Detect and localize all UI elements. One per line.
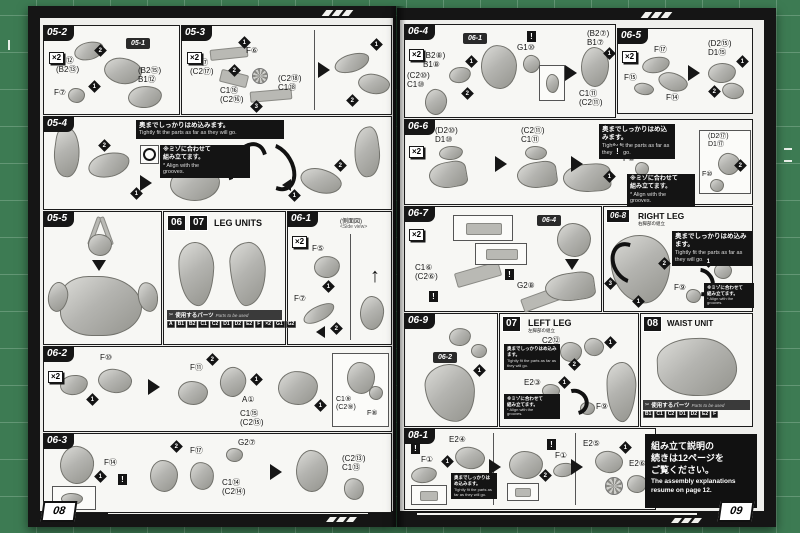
part-drawing	[300, 299, 337, 328]
detail-inset	[539, 65, 565, 101]
step-panel-05-5: 05-5	[43, 211, 162, 345]
part-label: C1⑯ (C2⑯)	[220, 86, 244, 104]
runner-badge: D1	[677, 411, 687, 418]
part-label: G2⑦	[238, 438, 256, 447]
step-panel-06-7: 06-7 ×2 C1⑥ (C2⑥) ! G2⑧ ! 06-4	[404, 206, 602, 312]
warning-jp: 奥までしっかりはめ込みます。	[675, 233, 749, 250]
part-label: F⑦	[54, 88, 66, 97]
part-drawing	[633, 82, 654, 97]
part-drawing	[707, 62, 737, 85]
caution-icon: !	[505, 269, 514, 280]
runner-badge: E2	[700, 411, 710, 418]
section-title: LEG UNITS	[214, 218, 262, 228]
part-drawing	[332, 49, 372, 77]
parts-used-jp: 使用するパーツ	[651, 401, 689, 409]
step-tag: 06-6	[404, 119, 435, 135]
step-panel-05-4: 05-4 奥までしっかりはめ込みます。 Tightly fit the part…	[43, 116, 392, 210]
part-drawing	[127, 84, 163, 109]
note-en: * Align with the grooves.	[163, 163, 247, 176]
part-drawing	[295, 449, 329, 493]
warning-en: Tightly fit the parts as far as they wil…	[139, 130, 281, 137]
step-tag: 06-4	[404, 24, 435, 40]
continuation-notice: 組み立て説明の 続きは12ページを ご覧ください。 The assembly e…	[645, 434, 757, 508]
panel-divider	[314, 30, 315, 110]
notice-jp-line3: ご覧ください。	[651, 464, 751, 476]
part-label: (D2⑰) D1⑰	[708, 133, 729, 149]
part-label: F⑥	[246, 46, 258, 55]
part-label: C1⑪ (C2⑪)	[579, 89, 603, 107]
runner-badge: B1	[643, 411, 653, 418]
part-drawing	[427, 159, 469, 191]
part-drawing	[277, 370, 319, 407]
order-marker: 1	[86, 393, 99, 406]
part-drawing	[448, 65, 473, 85]
assembly-arrow-icon	[571, 459, 583, 475]
part-label: F⑮	[624, 73, 637, 82]
step-tag: 05-2	[43, 25, 74, 41]
part-label: F⑭	[104, 458, 117, 467]
step-tag: 06-5	[617, 28, 648, 44]
runner-badge: G2	[286, 321, 297, 328]
runner-badge: D1	[221, 321, 231, 328]
detail-inset	[453, 215, 513, 241]
ref-step-tag: 06-1	[463, 33, 487, 44]
leg-render	[604, 361, 637, 422]
page-number-right: 09	[718, 501, 755, 522]
assembly-arrow-icon	[282, 179, 291, 191]
step-tag: 06-3	[43, 433, 74, 449]
step-tag: 06-1	[287, 211, 318, 227]
step-panel-05-2: 05-2 ×2 05-1 B1⑫ (B2⑬) F⑦ (B2⑮) B1⑫ 2 1	[43, 25, 180, 115]
step-tag: 05-4	[43, 116, 74, 132]
multiplier-badge: ×2	[48, 371, 63, 383]
step-panel-06-1: 06-1 ×2 (側面図) <Side view> F⑤ 1 F⑦ 2 ↑	[287, 211, 392, 345]
order-marker: 1	[88, 80, 101, 93]
order-marker: 1	[473, 364, 486, 377]
step-tag: 06-9	[404, 313, 435, 329]
page-deco	[417, 513, 697, 515]
section-subtitle-jp: 右脚部の組立	[638, 221, 665, 227]
right-page: 09 06-4 ×2 06-1 (B2⑧) B1⑧ (C2⑩) C1⑩ ! G1…	[397, 8, 776, 527]
fan-part-drawing	[605, 477, 623, 495]
runner-badges: A B1 B2 C1 C2 D1 D2 E2 F ×2 G1 G2	[167, 321, 282, 328]
part-drawing	[210, 46, 249, 61]
assembly-arrow-icon	[571, 156, 583, 172]
part-label: C1⑮ (C2⑮)	[240, 409, 264, 427]
panel-divider	[350, 234, 351, 340]
part-drawing	[583, 336, 606, 357]
part-drawing	[556, 222, 591, 257]
step-panel-06-9: 06-9 06-2 1	[404, 313, 498, 427]
section-title: WAIST UNIT	[667, 319, 713, 328]
leg-render	[177, 241, 215, 306]
warning-en: Tightly fit the parts as far as they wil…	[454, 487, 494, 497]
part-label: F⑦	[294, 294, 306, 303]
part-label: E2③	[524, 378, 541, 387]
notice-jp-line1: 組み立て説明の	[651, 440, 751, 452]
part-drawing	[188, 460, 216, 491]
caution-icon: !	[411, 443, 420, 454]
runner-badge: D2	[689, 411, 699, 418]
runner-badge: B2	[187, 321, 197, 328]
warning-jp: 奥までしっかりはめ込みます。	[507, 346, 557, 358]
left-page-content: 05-2 ×2 05-1 B1⑫ (B2⑬) F⑦ (B2⑮) B1⑫ 2 1 …	[40, 18, 393, 511]
cutter-icon: ✂	[169, 312, 173, 318]
part-drawing	[480, 44, 518, 89]
part-label: F⑩	[100, 353, 112, 362]
caution-icon: !	[613, 146, 622, 157]
order-marker: 1	[250, 373, 263, 386]
caution-icon: !	[527, 31, 536, 42]
page-number-text: 09	[729, 505, 743, 517]
groove-icon	[143, 148, 156, 161]
part-drawing	[150, 460, 178, 492]
part-label: (D2⑩) D1⑩	[435, 126, 458, 144]
ref-step-tag: 06-2	[433, 352, 457, 363]
multiplier-badge: ×2	[409, 229, 424, 241]
left-page: 08 05-2 ×2 05-1 B1⑫ (B2⑬) F⑦ (B2⑮) B1⑫ 2…	[28, 6, 396, 527]
part-drawing	[410, 465, 438, 484]
assembly-arrow-icon	[688, 65, 700, 81]
order-marker: 1	[322, 280, 335, 293]
runner-badge: G1	[274, 321, 285, 328]
part-drawing	[313, 254, 342, 279]
mat-mark	[784, 160, 792, 162]
step-tag: 06-7	[404, 206, 435, 222]
part-label: F①	[555, 451, 567, 460]
detail-inset	[411, 485, 447, 505]
part-label: F⑩	[702, 171, 713, 179]
section-subtitle-jp: 左脚部の組立	[528, 328, 555, 334]
parts-used-strip: ✂ 使用するパーツ Parts to be used B1 C1 C2 D1 D…	[643, 400, 750, 418]
part-label: F⑭	[666, 93, 679, 102]
groove-note-box: ※ミゾに合わせて 組み立てます。 * Align with the groove…	[160, 145, 250, 178]
step-panel-06-3: 06-3 F⑭ ! 1 F⑰ 2 G2⑦ C1⑭ (C2⑭) (C2⑬) C1⑬	[43, 433, 392, 513]
part-drawing	[51, 125, 84, 178]
parts-used-jp: 使用するパーツ	[175, 311, 213, 319]
multiplier-badge: ×2	[622, 51, 637, 63]
part-label: (D2⑮) D1⑮	[708, 39, 732, 57]
parts-used-head: ✂ 使用するパーツ Parts to be used	[167, 310, 282, 320]
runner-badge: F	[711, 411, 718, 418]
detail-inset	[507, 483, 539, 501]
order-marker: 1	[94, 470, 107, 483]
waist-render	[656, 337, 738, 398]
section-header-waist-unit: 08 WAIST UNIT ✂ 使用するパーツ Parts to be used…	[640, 313, 753, 427]
part-label: (B2⑮) B1⑫	[138, 66, 161, 84]
part-label: F⑨	[674, 283, 686, 292]
part-drawing	[359, 295, 385, 331]
runner-badge: B1	[176, 321, 186, 328]
parts-used-strip: ✂ 使用するパーツ Parts to be used A B1 B2 C1 C2…	[167, 310, 282, 328]
part-label: F⑤	[312, 244, 324, 253]
note-jp: ※ミゾに合わせて 組み立てます。	[163, 147, 247, 163]
part-drawing	[420, 491, 438, 501]
parts-used-en: Parts to be used	[692, 403, 725, 408]
part-label: (C2⑪) C1⑪	[521, 126, 545, 144]
part-label: G1⑩	[517, 43, 535, 52]
part-label: F⑰	[654, 45, 667, 54]
order-marker: 1	[314, 399, 327, 412]
groove-icon-box	[140, 145, 159, 164]
assembly-arrow-icon	[318, 62, 330, 78]
part-drawing	[525, 146, 547, 160]
part-label: F⑧	[367, 410, 378, 418]
order-marker: 2	[98, 139, 111, 152]
order-marker: 2	[334, 159, 347, 172]
part-drawing	[710, 179, 724, 192]
part-drawing	[357, 72, 391, 96]
ref-step-tag: 05-1	[126, 38, 150, 49]
assembly-arrow-icon	[495, 156, 507, 172]
part-label: E2⑤	[583, 439, 600, 448]
parts-used-en: Parts to be used	[216, 313, 249, 318]
runner-badge: C2	[666, 411, 676, 418]
order-marker: 2	[170, 440, 183, 453]
part-label: E2⑥	[629, 459, 646, 468]
order-marker: 2	[330, 322, 343, 335]
section-number: 07	[189, 215, 208, 231]
part-drawing	[471, 344, 487, 358]
order-marker: 1	[370, 38, 383, 51]
notice-jp-line2: 続きは12ページを	[651, 452, 751, 464]
part-drawing	[351, 125, 384, 178]
assembly-arrow-icon	[565, 259, 579, 270]
part-drawing	[454, 445, 487, 471]
part-drawing	[466, 223, 502, 235]
section-header-leg-units: 06 07 LEG UNITS ✂ 使用するパーツ Parts to be us…	[163, 211, 286, 345]
detail-inset: (D2⑰) D1⑰ F⑩ 2	[699, 130, 751, 194]
page-deco	[342, 10, 354, 16]
section-number: 06	[167, 215, 186, 231]
detail-inset: C1⑨ (C2⑨) F⑧	[332, 353, 389, 427]
part-label: C1⑭ (C2⑭)	[222, 478, 246, 496]
runner-badge: E2	[244, 321, 254, 328]
part-label: C1⑥ (C2⑥)	[415, 263, 438, 281]
up-arrow-icon: ↑	[370, 266, 380, 286]
warning-jp: 奥までしっかりはめ込みます。	[139, 122, 281, 130]
page-number-left: 08	[41, 501, 78, 522]
section-number: 08	[643, 316, 662, 332]
multiplier-badge: ×2	[187, 52, 202, 64]
runner-badge: C2	[210, 321, 220, 328]
warning-box: 奥までしっかりはめ込みます。 Tightly fit the parts as …	[599, 124, 675, 159]
note-jp: ※ミゾに合わせて 組み立てます。	[630, 176, 692, 192]
notice-en-line2: resume on page 12.	[651, 487, 751, 495]
part-drawing	[454, 261, 502, 288]
part-drawing	[226, 448, 243, 462]
part-label: (C2⑬) C1⑬	[342, 454, 366, 472]
part-drawing	[546, 74, 559, 93]
warning-box: 奥までしっかりはめ込みます。 Tightly fit the parts as …	[136, 120, 284, 139]
assembly-arrow-icon	[140, 175, 152, 191]
groove-note-box: ※ミゾに合わせて 組み立てます。 * Align with the groove…	[627, 174, 695, 207]
section-title: LEFT LEG	[528, 318, 572, 328]
part-label: (C2⑱) C1⑱	[278, 74, 302, 92]
page-number-text: 08	[52, 505, 66, 517]
step-panel-06-8-right-leg: 06-8 RIGHT LEG 右脚部の組立 1 2 3 奥までしっかりはめ込みま…	[603, 206, 753, 312]
order-marker: 2	[206, 353, 219, 366]
step-panel-08-1: 08-1 ! F① E2④ 1 奥までしっかりはめ込みます。 Tightly f…	[404, 428, 656, 510]
section-number: 07	[502, 316, 521, 332]
part-drawing	[342, 476, 366, 501]
assembly-arrow-icon	[148, 379, 160, 395]
part-drawing	[369, 386, 383, 400]
mat-mark	[8, 40, 10, 50]
part-drawing	[721, 81, 745, 101]
warning-jp: 奥までしっかりはめ込みます。	[602, 126, 672, 143]
parts-used-head: ✂ 使用するパーツ Parts to be used	[643, 400, 750, 410]
part-label: F⑰	[190, 446, 203, 455]
part-drawing	[448, 327, 472, 348]
part-drawing	[86, 148, 133, 181]
part-drawing	[438, 145, 463, 161]
part-drawing	[486, 249, 518, 260]
order-marker: 1	[441, 455, 454, 468]
ref-step-tag: 06-4	[537, 215, 561, 226]
step-panel-07-left-leg: 07 LEFT LEG 左脚部の組立 C2⑫ 1 2 奥までしっかりはめ込みます…	[499, 313, 639, 427]
note-jp: ※ミゾに合わせて 組み立てます。	[507, 396, 557, 408]
step-panel-05-3: 05-3 ×2 C1⑰ (C2⑰) F⑥ C1⑯ (C2⑯) (C2⑱) C1⑱…	[181, 25, 392, 115]
part-label: F⑨	[596, 402, 608, 411]
multiplier-badge: ×2	[49, 52, 64, 64]
note-jp: ※ミゾに合わせて 組み立てます。	[707, 285, 751, 297]
note-en: * Align with the grooves.	[707, 297, 751, 307]
order-marker: 1	[288, 189, 301, 202]
runner-badge: ×2	[263, 321, 273, 328]
notice-en-line1: The assembly explanations	[651, 478, 751, 486]
order-marker: 2	[461, 87, 474, 100]
part-label: E2④	[449, 435, 466, 444]
section-title: RIGHT LEG	[638, 211, 684, 221]
order-marker: 2	[708, 85, 721, 98]
part-label: F①	[421, 455, 433, 464]
runner-badge: C1	[654, 411, 664, 418]
part-label: C1⑨ (C2⑨)	[336, 396, 356, 412]
order-marker: 2	[346, 94, 359, 107]
part-label: F⑪	[190, 363, 203, 372]
step-tag: 05-5	[43, 211, 74, 227]
runner-badges: B1 C1 C2 D1 D2 E2 F	[643, 411, 750, 418]
part-label: (C2⑩) C1⑩	[407, 71, 430, 89]
photo-of-instruction-manual: 08 05-2 ×2 05-1 B1⑫ (B2⑬) F⑦ (B2⑮) B1⑫ 2…	[0, 0, 800, 533]
leg-render	[228, 241, 267, 307]
assembly-arrow-icon	[270, 464, 282, 480]
step-panel-06-6: 06-6 ×2 (D2⑩) D1⑩ (C2⑪) C1⑪ 奥までしっかりはめ込みま…	[404, 119, 753, 205]
part-drawing	[58, 373, 89, 398]
order-marker: 1	[604, 336, 617, 349]
multiplier-badge: ×2	[409, 146, 424, 158]
part-label: A①	[242, 395, 255, 404]
assembly-arrow-icon	[92, 260, 106, 271]
page-deco	[661, 12, 673, 18]
section-number: 06-8	[606, 209, 630, 223]
warning-en: Tightly fit the parts as far as they wil…	[507, 358, 557, 368]
order-marker: 1	[465, 55, 478, 68]
part-drawing	[515, 488, 531, 497]
part-drawing	[178, 381, 208, 405]
page-deco	[346, 517, 357, 522]
view-note-en: <Side view>	[340, 224, 367, 230]
step-panel-06-2: 06-2 ×2 F⑩ 1 F⑪ A① 2 1 C1⑮ (C2⑮) 1	[43, 346, 392, 432]
fan-part-drawing	[252, 68, 268, 84]
warning-box: 奥までしっかりはめ込みます。 Tightly fit the parts as …	[451, 473, 497, 499]
step-tag: 08-1	[404, 428, 435, 444]
groove-note-box: ※ミゾに合わせて 組み立てます。 * Align with the groove…	[704, 283, 754, 308]
part-label: (B2⑧) B1⑧	[423, 51, 445, 69]
groove-note-box: ※ミゾに合わせて 組み立てます。 * Align with the groove…	[504, 394, 560, 419]
caution-icon: !	[547, 439, 556, 450]
order-marker: 1	[736, 55, 749, 68]
page-deco	[691, 518, 702, 523]
caution-icon: !	[118, 474, 127, 485]
warning-jp: 奥までしっかりはめ込みます。	[454, 475, 494, 487]
note-en: * Align with the grooves.	[630, 192, 692, 205]
head-drawing	[88, 234, 112, 256]
order-marker: 1	[558, 376, 571, 389]
note-en: * Align with the grooves.	[507, 408, 557, 418]
step-panel-06-5: 06-5 ×2 F⑰ F⑮ F⑭ (D2⑮) D1⑮ 1 2	[617, 28, 753, 114]
runner-badge: A	[167, 321, 175, 328]
detail-inset	[475, 243, 527, 265]
leg-render	[424, 363, 477, 424]
part-drawing	[656, 69, 690, 95]
multiplier-badge: ×2	[292, 236, 307, 248]
runner-badge: F	[255, 321, 262, 328]
part-drawing	[515, 159, 558, 190]
part-label: (B2⑦) B1⑦	[587, 29, 609, 47]
part-drawing	[424, 88, 449, 116]
right-page-content: 06-4 ×2 06-1 (B2⑧) B1⑧ (C2⑩) C1⑩ ! G1⑩ 1…	[400, 20, 764, 511]
cutter-icon: ✂	[645, 402, 649, 408]
torso-drawing	[60, 276, 142, 336]
warning-box: 奥までしっかりはめ込みます。 Tightly fit the parts as …	[504, 344, 560, 370]
part-drawing	[594, 450, 624, 475]
order-marker: 1	[619, 441, 632, 454]
caution-icon: !	[429, 291, 438, 302]
part-drawing	[58, 445, 95, 486]
step-panel-06-4: 06-4 ×2 06-1 (B2⑧) B1⑧ (C2⑩) C1⑩ ! G1⑩ 1…	[404, 24, 616, 118]
runner-badge: C1	[198, 321, 208, 328]
mat-mark	[784, 148, 792, 150]
step-tag: 05-3	[181, 25, 212, 41]
part-drawing	[97, 367, 133, 394]
runner-badge: D2	[233, 321, 243, 328]
part-drawing	[560, 342, 582, 362]
step-tag: 06-2	[43, 346, 74, 362]
booklet-spine-shadow	[390, 6, 406, 527]
assembly-arrow-icon	[316, 326, 325, 338]
part-label: G2⑧	[517, 281, 535, 290]
part-drawing	[68, 88, 85, 103]
assembly-arrow-icon	[565, 65, 577, 81]
multiplier-badge: ×2	[409, 49, 424, 61]
